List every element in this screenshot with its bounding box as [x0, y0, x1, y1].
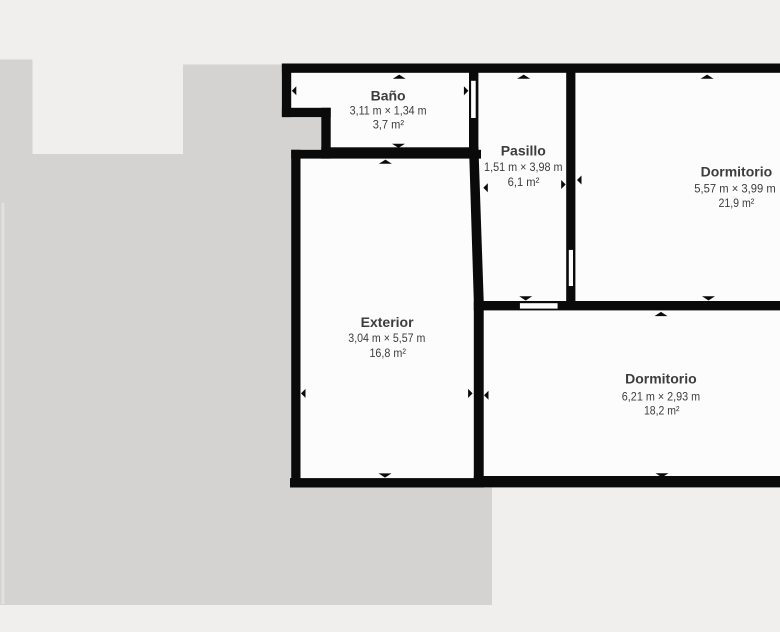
svg-text:6,21 m × 2,93 m: 6,21 m × 2,93 m	[622, 390, 700, 404]
svg-text:1,51 m × 3,98 m: 1,51 m × 3,98 m	[484, 160, 563, 174]
svg-text:Baño: Baño	[371, 87, 406, 103]
svg-text:5,57 m × 3,99 m: 5,57 m × 3,99 m	[694, 182, 775, 196]
svg-text:18,2 m²: 18,2 m²	[644, 403, 680, 417]
svg-text:Dormitorio: Dormitorio	[625, 370, 697, 386]
svg-text:6,1 m²: 6,1 m²	[508, 175, 540, 189]
svg-text:Exterior: Exterior	[361, 314, 414, 330]
svg-text:Dormitorio: Dormitorio	[701, 164, 773, 180]
svg-text:3,04 m × 5,57 m: 3,04 m × 5,57 m	[348, 331, 425, 345]
svg-text:3,11 m × 1,34 m: 3,11 m × 1,34 m	[350, 103, 427, 117]
svg-text:3,7 m²: 3,7 m²	[373, 118, 404, 132]
svg-text:21,9 m²: 21,9 m²	[718, 196, 754, 210]
svg-text:Pasillo: Pasillo	[501, 143, 546, 159]
svg-text:16,8 m²: 16,8 m²	[369, 346, 406, 360]
